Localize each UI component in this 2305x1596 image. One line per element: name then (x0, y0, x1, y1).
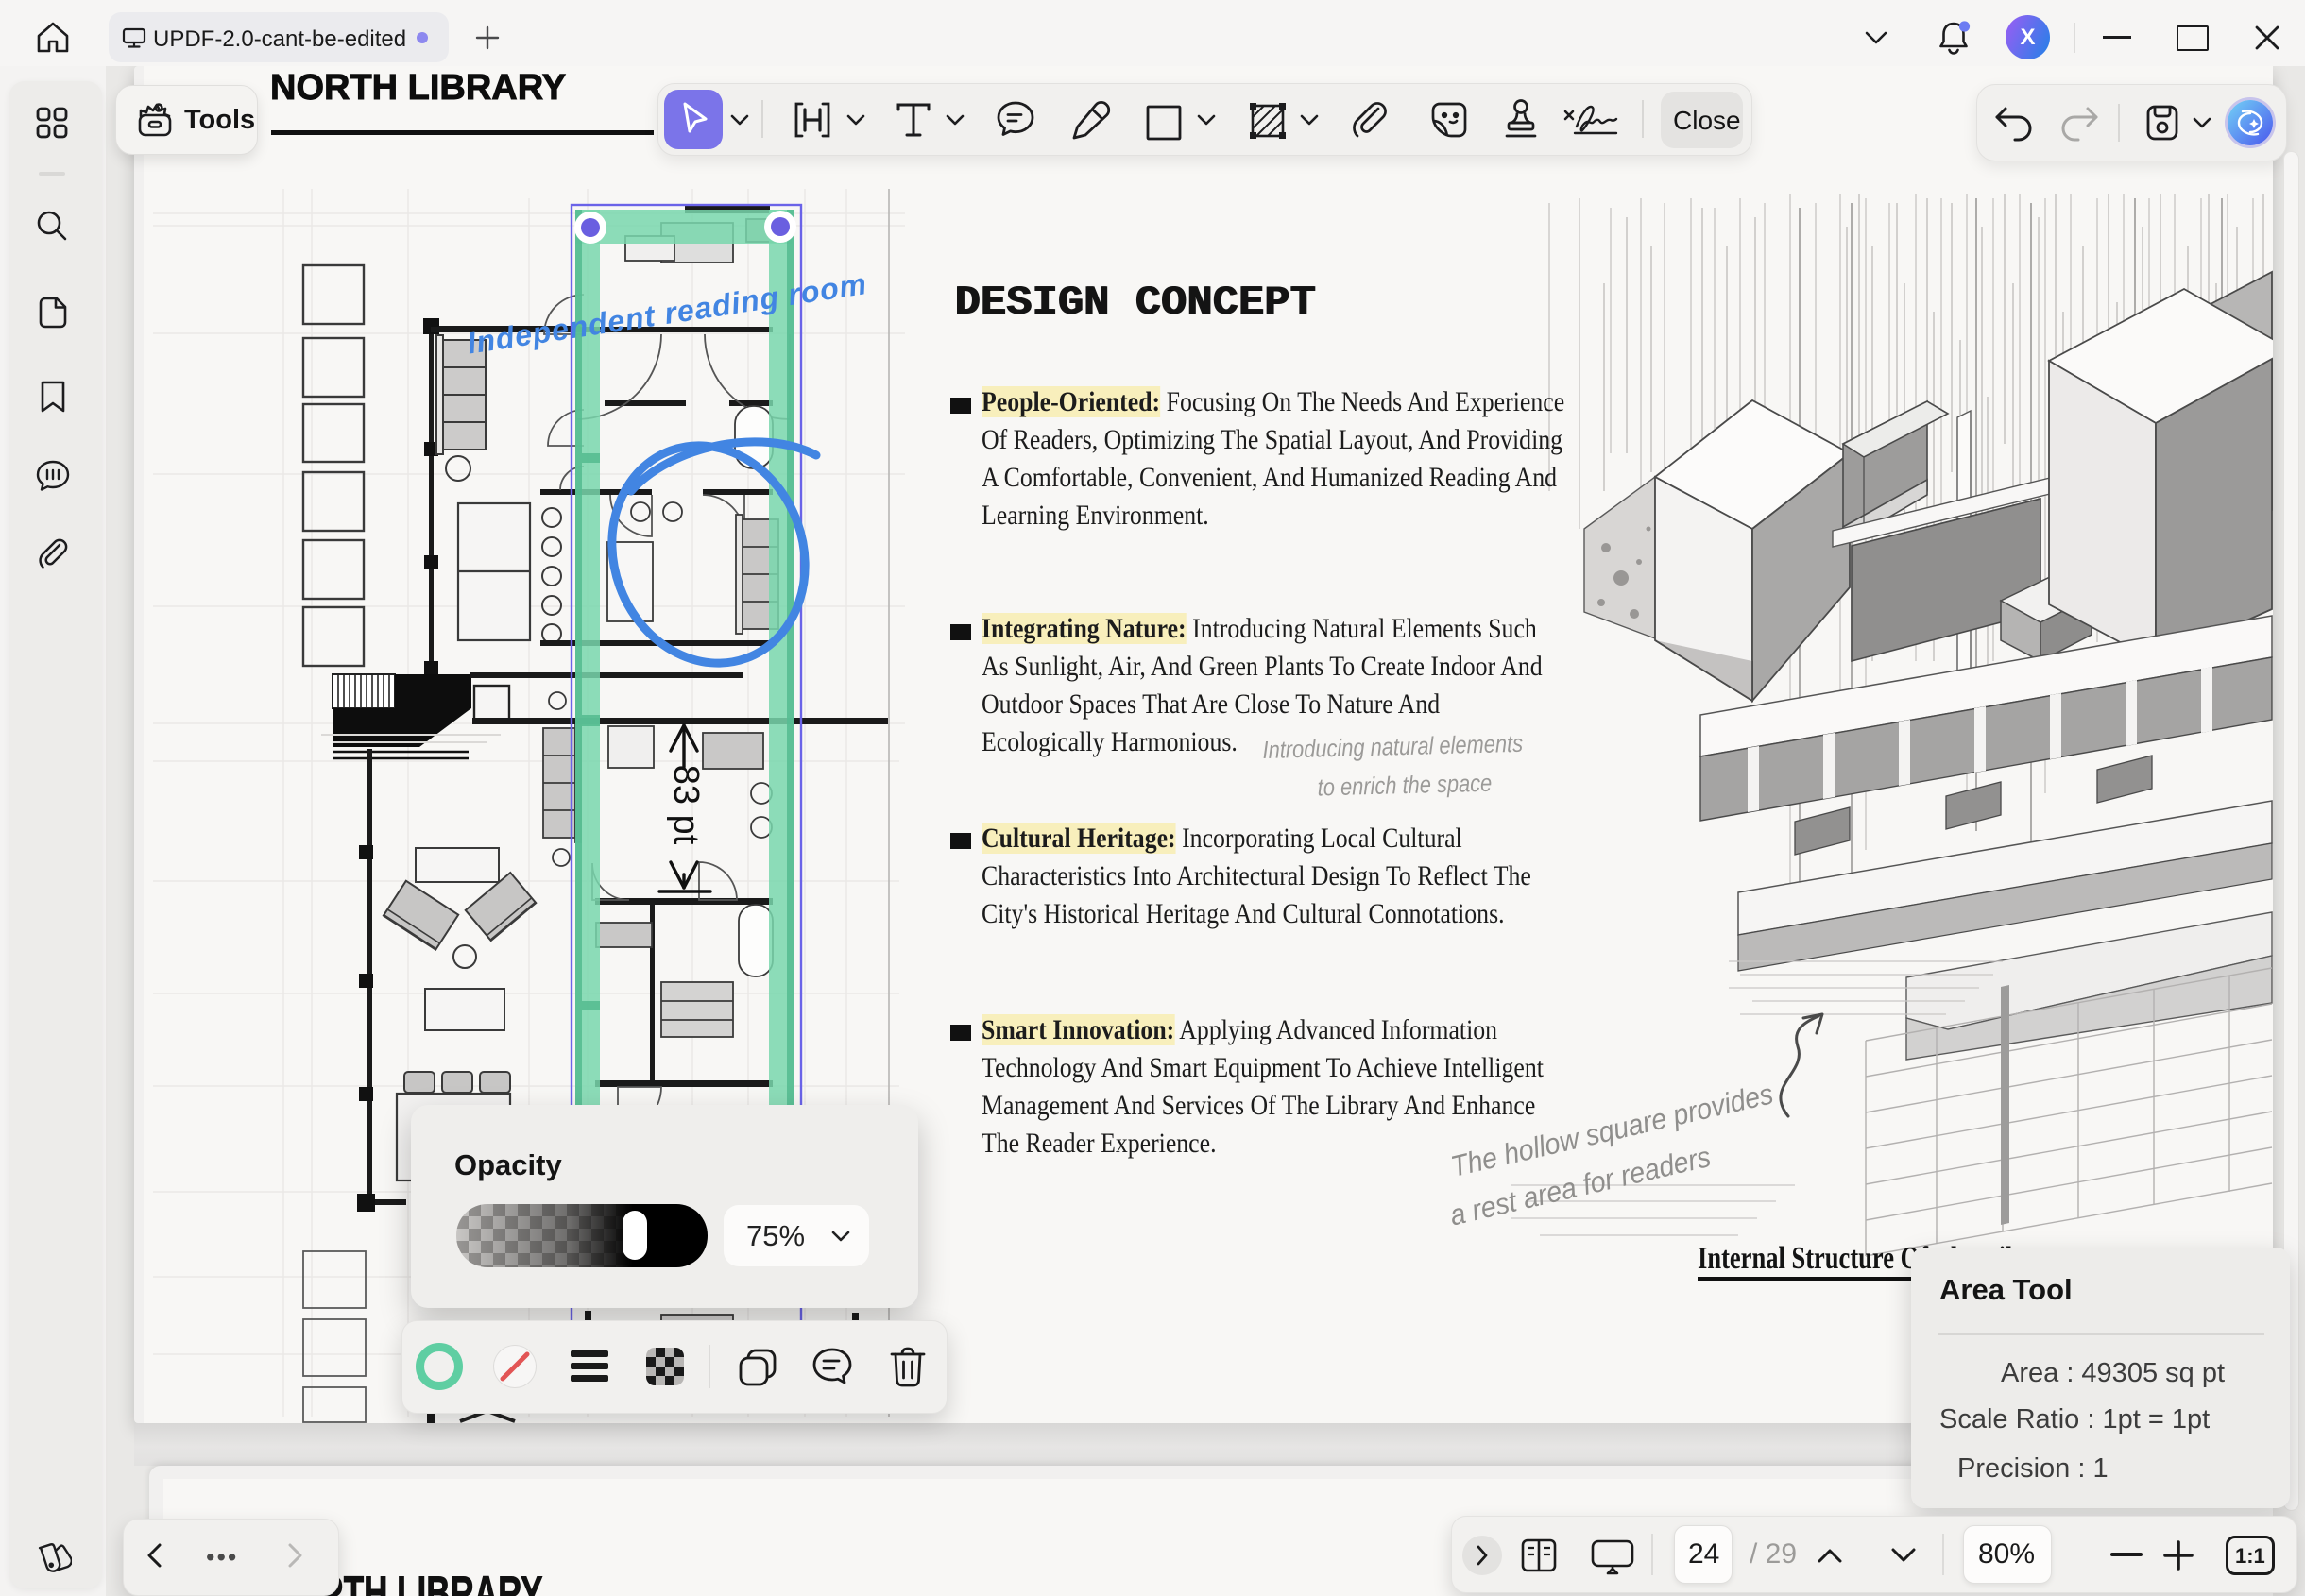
svg-text:83 pt: 83 pt (666, 765, 706, 845)
